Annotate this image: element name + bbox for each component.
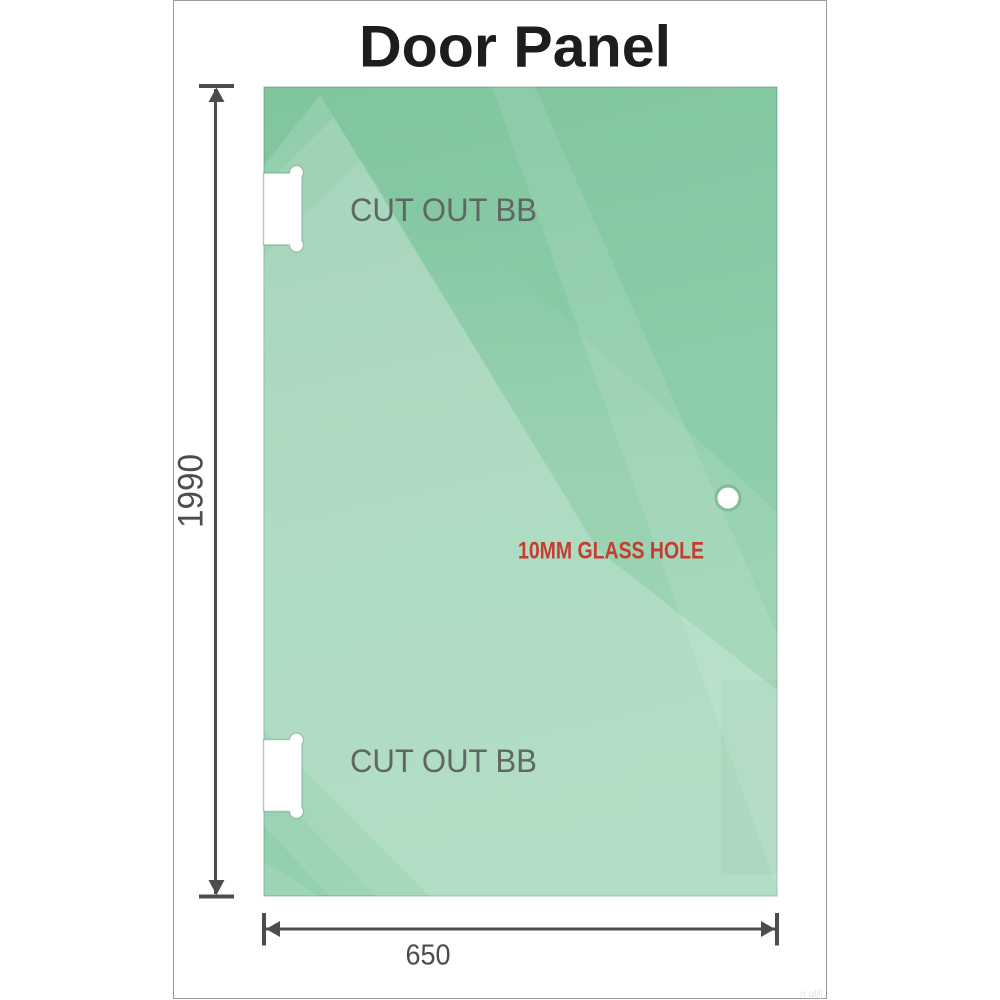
svg-text:CUT OUT BB: CUT OUT BB bbox=[350, 192, 537, 228]
svg-text:n qlllj: n qlllj bbox=[800, 989, 824, 1000]
svg-text:10MM GLASS HOLE: 10MM GLASS HOLE bbox=[518, 538, 704, 565]
svg-text:650: 650 bbox=[406, 940, 451, 972]
svg-text:Door Panel: Door Panel bbox=[359, 15, 671, 80]
svg-text:CUT OUT BB: CUT OUT BB bbox=[350, 743, 537, 779]
svg-text:1990: 1990 bbox=[172, 454, 211, 528]
